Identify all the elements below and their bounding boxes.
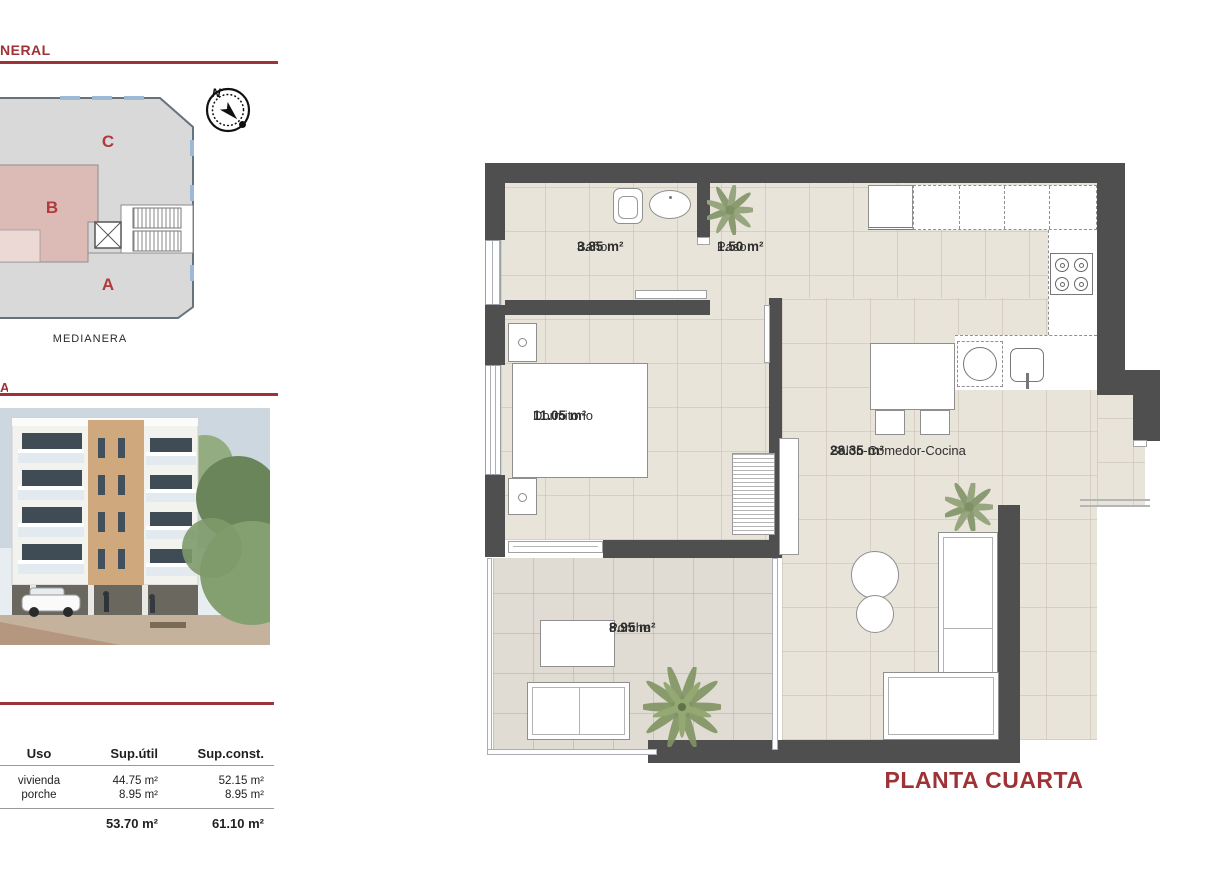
areas-table-header: Uso Sup.útil Sup.const. [0, 746, 274, 766]
shelf-unit [732, 453, 775, 535]
nightstand [508, 478, 537, 515]
lamp-dot [518, 338, 527, 347]
plant-icon [707, 185, 753, 235]
brochure-page: NERAL C B A MEDIAN [0, 0, 1220, 870]
table-row: vivienda 44.75 m² 52.15 m² [0, 775, 274, 789]
wall [505, 300, 710, 315]
floor [1133, 447, 1145, 507]
dining-table [870, 343, 955, 410]
medianera-label: MEDIANERA [30, 333, 150, 345]
door-jamb [764, 305, 770, 363]
kitchen-sink-icon [1010, 348, 1044, 382]
wall [1097, 163, 1125, 373]
col-header-sup-util: Sup.útil [78, 746, 158, 761]
cell-sup-const: 52.15 m² [158, 775, 274, 789]
cell-sup-util: 44.75 m² [78, 775, 158, 789]
wall [485, 475, 505, 557]
hob-icon [1050, 253, 1093, 295]
cell-uso: porche [0, 789, 78, 803]
washer-icon [957, 341, 1003, 387]
washer-drum [963, 347, 997, 381]
stairs-icon [133, 231, 181, 251]
plan-title: PLANTA CUARTA [834, 767, 1134, 794]
room-area: 1.50 m² [717, 239, 764, 254]
cell-sup-util: 8.95 m² [78, 789, 158, 803]
divider [0, 393, 278, 396]
wall [485, 305, 505, 365]
window [485, 240, 501, 305]
porch-bench [527, 682, 630, 740]
cell-empty [0, 816, 78, 831]
page-title: NERAL [0, 42, 51, 58]
cell-total-sup-const: 61.10 m² [158, 816, 274, 831]
sofa-chaise [883, 672, 999, 740]
compass-n-label: N [212, 86, 221, 100]
window [485, 365, 501, 475]
door-leaf [779, 438, 799, 555]
wall [485, 163, 1125, 183]
room-area: 28.35 m² [830, 443, 884, 458]
room-area: 11.05 m² [533, 408, 586, 423]
floor-plan: Baño 3.85 m² Paso 1.50 m² Dormitorio 11.… [485, 155, 1161, 769]
cabinet-divider [1049, 186, 1050, 229]
porch-glass-rail [487, 558, 492, 754]
room-area: 8.95 m² [609, 620, 656, 635]
wall [603, 540, 782, 558]
faucet-dot [669, 196, 672, 199]
clipped-letter: A [0, 380, 8, 392]
burner [1055, 258, 1069, 272]
col-header-uso: Uso [0, 746, 78, 761]
wall [998, 505, 1020, 763]
wall [1097, 370, 1160, 395]
sliding-door [508, 541, 603, 553]
porch-glass-rail [487, 749, 657, 755]
round-table [851, 551, 899, 599]
wall [485, 163, 505, 240]
table-total-row: 53.70 m² 61.10 m² [0, 808, 274, 831]
sofa-seam [943, 628, 993, 629]
cabinet-divider [1004, 186, 1005, 229]
bench-divider [579, 687, 580, 735]
kitchen-counter [913, 185, 1097, 230]
window-sill [1133, 440, 1147, 447]
cell-total-sup-util: 53.70 m² [78, 816, 158, 831]
cabinet-divider [959, 186, 960, 229]
site-plan: C B A [0, 85, 196, 350]
divider [0, 702, 274, 705]
door-line [513, 546, 598, 547]
balcony-sill [1080, 505, 1150, 507]
burner [1055, 277, 1069, 291]
cell-uso: vivienda [0, 775, 78, 789]
toilet-icon [613, 188, 643, 224]
unit-label-a: A [102, 275, 114, 294]
palm-tree-icon [643, 667, 721, 747]
door-jamb [697, 237, 710, 245]
porch-table [540, 620, 615, 667]
site-plan-outline [0, 96, 194, 318]
room-area: 3.85 m² [577, 239, 624, 254]
unit-label-b: B [46, 198, 58, 217]
cell-sup-const: 8.95 m² [158, 789, 274, 803]
chair [875, 410, 905, 435]
stairs-icon [133, 208, 181, 228]
col-header-sup-const: Sup.const. [158, 746, 274, 761]
faucet [1026, 373, 1029, 389]
areas-table: Uso Sup.útil Sup.const. vivienda 44.75 m… [0, 746, 274, 831]
toilet-bowl [618, 196, 638, 219]
table-row: porche 8.95 m² 8.95 m² [0, 789, 274, 803]
sink-icon [649, 190, 691, 219]
pouf [856, 595, 894, 633]
sofa-cushion-line [888, 677, 994, 735]
balcony-sill [1080, 499, 1150, 501]
plant-icon [945, 483, 993, 531]
wall [1133, 395, 1160, 441]
fridge-icon [868, 185, 913, 230]
nightstand [508, 323, 537, 362]
burner [1074, 258, 1088, 272]
porch-glass-rail [772, 558, 778, 750]
burner [1074, 277, 1088, 291]
compass-icon: N [202, 84, 254, 136]
building-photo [0, 408, 270, 645]
unit-label-c: C [102, 132, 114, 151]
building-render [0, 408, 270, 645]
divider [0, 61, 278, 64]
chair [920, 410, 950, 435]
lamp-dot [518, 493, 527, 502]
floor [1097, 395, 1133, 507]
sliding-door [635, 290, 707, 299]
